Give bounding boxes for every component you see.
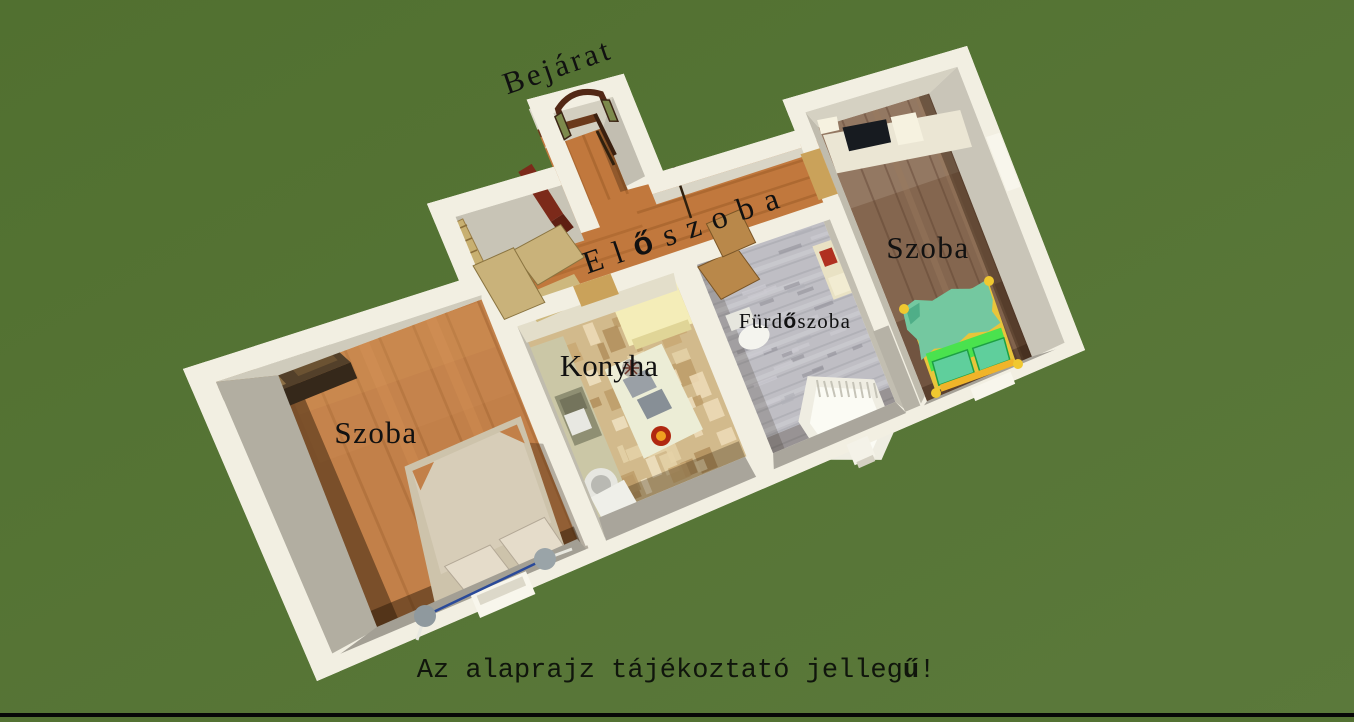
svg-text:Szoba: Szoba <box>334 415 417 450</box>
svg-text:Konyha: Konyha <box>560 348 658 383</box>
svg-text:Szoba: Szoba <box>886 230 969 265</box>
svg-text:Az alaprajz tájékoztató jelleg: Az alaprajz tájékoztató jellegű! <box>417 656 936 686</box>
svg-text:Fürdőszoba: Fürdőszoba <box>739 309 851 333</box>
